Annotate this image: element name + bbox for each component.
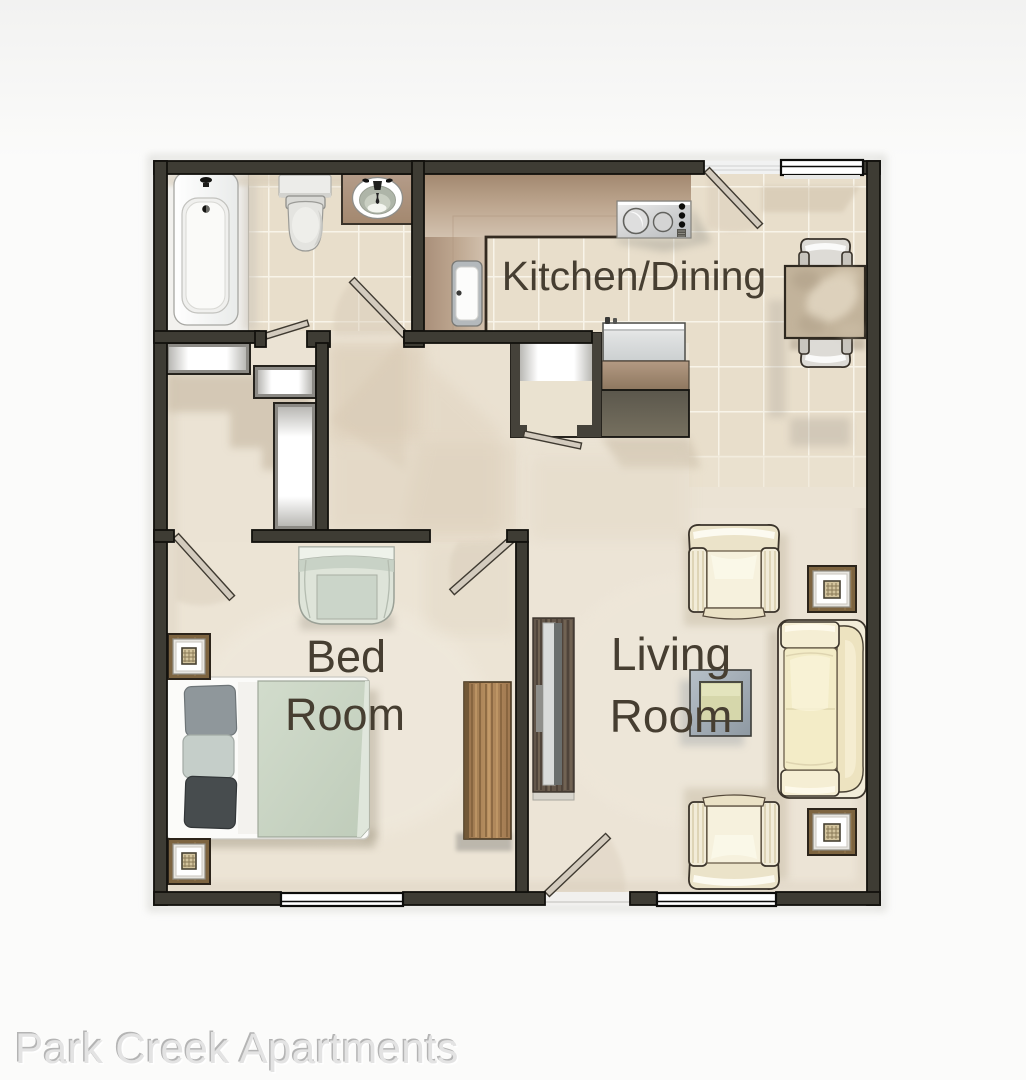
svg-text:Living: Living [611,628,731,680]
svg-text:Park Creek Apartments: Park Creek Apartments [15,1026,459,1073]
svg-text:Bed: Bed [306,631,386,682]
svg-text:Room: Room [285,689,405,740]
svg-text:Kitchen/Dining: Kitchen/Dining [502,253,766,299]
svg-text:Room: Room [610,690,733,742]
